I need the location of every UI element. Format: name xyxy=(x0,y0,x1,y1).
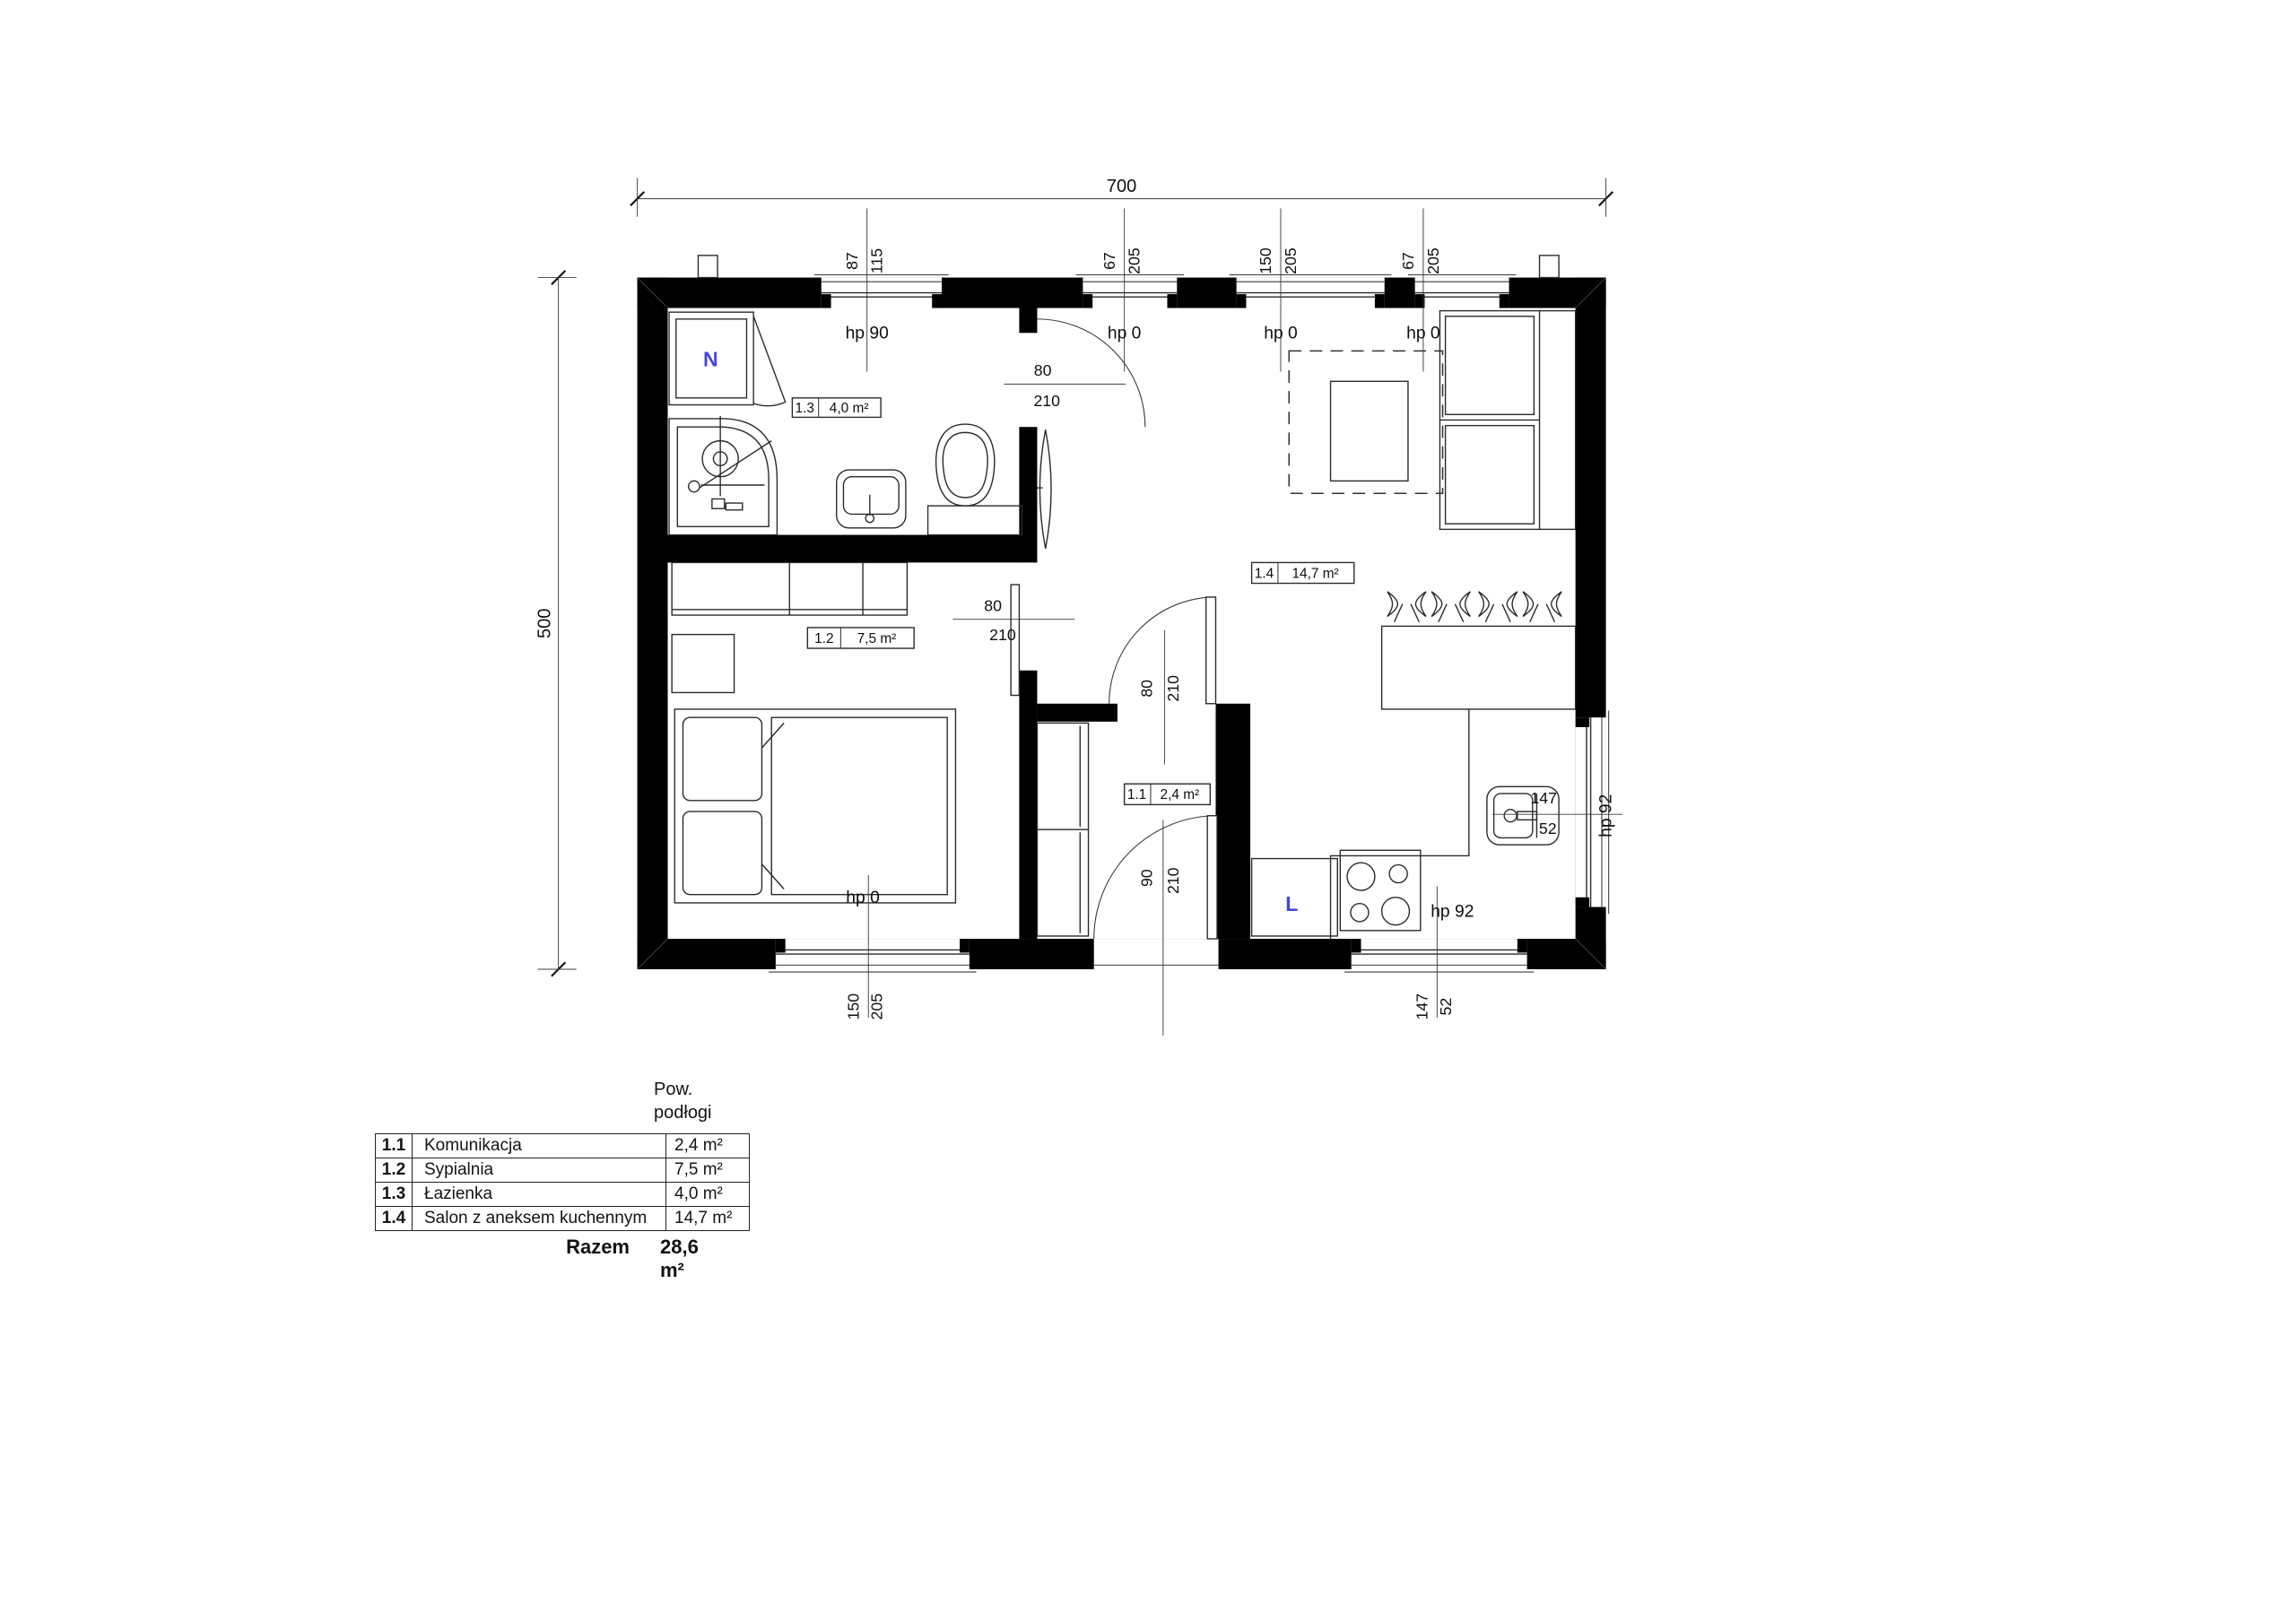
svg-text:210: 210 xyxy=(1164,867,1182,894)
hp-label: hp 0 xyxy=(1264,324,1298,343)
window-top-4 xyxy=(1408,274,1516,308)
svg-text:210: 210 xyxy=(989,626,1016,644)
svg-text:147: 147 xyxy=(1530,789,1557,807)
svg-text:205: 205 xyxy=(1126,247,1144,274)
room-labels: 1.3 4,0 m² 1.2 7,5 m² 1.1 2,4 m² 1.4 14,… xyxy=(792,398,1353,805)
floor-plan-drawing: N xyxy=(478,146,1648,1066)
svg-text:67: 67 xyxy=(1100,252,1118,270)
svg-text:700: 700 xyxy=(1107,177,1136,196)
bathroom-fixtures: N xyxy=(669,312,1022,534)
table-row: 1.3 Łazienka 4,0 m² xyxy=(376,1183,750,1207)
svg-text:80: 80 xyxy=(1034,361,1052,379)
window-top-2 xyxy=(1076,274,1184,308)
bedroom-wardrobe xyxy=(672,562,907,615)
room-name: Salon z aneksem kuchennym xyxy=(413,1207,666,1231)
bar-stools xyxy=(1387,592,1561,622)
entrance-opening xyxy=(1094,939,1219,969)
window-bathroom-top xyxy=(814,274,949,308)
svg-text:52: 52 xyxy=(1539,820,1557,837)
room-label-1.3: 1.3 4,0 m² xyxy=(792,398,881,418)
washer-letter: N xyxy=(703,347,718,370)
hob xyxy=(1340,850,1420,930)
hp-label: hp 0 xyxy=(846,889,880,907)
kitchen-counter: L xyxy=(1252,709,1560,939)
dim-door-hall: 80 210 xyxy=(1138,630,1182,765)
dim-door-bathroom: 80 210 xyxy=(1004,361,1126,410)
hp-label: hp 0 xyxy=(1406,324,1440,343)
dim-door-entrance: 90 210 xyxy=(1138,820,1182,1036)
svg-text:500: 500 xyxy=(535,609,554,638)
room-area-table: 1.1 Komunikacja 2,4 m² 1.2 Sypialnia 7,5… xyxy=(375,1133,750,1231)
svg-text:147: 147 xyxy=(1413,993,1431,1020)
dim-total-width: 700 xyxy=(631,177,1613,217)
room-area: 14,7 m² xyxy=(666,1207,750,1231)
door-bathroom xyxy=(1037,319,1144,549)
wardrobe-projection-dashed xyxy=(1289,351,1442,493)
table-header: Pow. podłogi xyxy=(654,1078,712,1124)
area-table: Pow. podłogi 1.1 Komunikacja 2,4 m² 1.2 … xyxy=(375,1133,726,1261)
living-kitchen: L xyxy=(1252,311,1576,939)
room-area: 7,5 m² xyxy=(666,1158,750,1183)
room-name: Sypialnia xyxy=(413,1158,666,1183)
fridge-letter: L xyxy=(1285,892,1298,915)
washing-machine: N xyxy=(669,312,786,406)
svg-text:67: 67 xyxy=(1399,252,1417,270)
svg-text:210: 210 xyxy=(1033,392,1060,410)
svg-text:1.4: 1.4 xyxy=(1255,566,1274,581)
svg-text:7,5 m²: 7,5 m² xyxy=(857,631,897,646)
svg-text:115: 115 xyxy=(868,248,886,273)
room-label-1.1: 1.1 2,4 m² xyxy=(1125,784,1211,804)
room-area: 4,0 m² xyxy=(666,1183,750,1207)
nightstand xyxy=(672,635,734,693)
bed xyxy=(674,709,955,903)
svg-text:80: 80 xyxy=(984,596,1002,614)
floor-plan: N xyxy=(478,146,1648,1066)
room-label-1.2: 1.2 7,5 m² xyxy=(807,628,914,648)
room-name: Komunikacja xyxy=(413,1134,666,1158)
hall-wardrobe xyxy=(1037,723,1088,936)
svg-text:210: 210 xyxy=(1164,675,1182,702)
total-row: Razem 28,6 m² xyxy=(375,1236,726,1261)
table-header-line2: podłogi xyxy=(654,1101,712,1124)
hp-label: hp 92 xyxy=(1597,794,1616,837)
svg-text:52: 52 xyxy=(1437,998,1455,1016)
bedroom-furniture xyxy=(672,562,955,903)
room-number: 1.2 xyxy=(376,1158,413,1183)
doors xyxy=(1011,319,1217,939)
table-row: 1.2 Sypialnia 7,5 m² xyxy=(376,1158,750,1183)
svg-text:1.3: 1.3 xyxy=(796,401,814,416)
room-label-1.4: 1.4 14,7 m² xyxy=(1252,562,1354,583)
svg-text:205: 205 xyxy=(868,993,886,1020)
window-kitchen-bottom xyxy=(1344,939,1534,972)
svg-text:205: 205 xyxy=(1282,247,1300,274)
svg-text:4,0 m²: 4,0 m² xyxy=(830,401,869,416)
page: N xyxy=(0,0,2296,1622)
bathroom-sink xyxy=(837,470,906,528)
svg-text:1.1: 1.1 xyxy=(1127,787,1146,802)
dim-window-right: 147 52 hp 92 xyxy=(1492,789,1622,837)
room-name: Łazienka xyxy=(413,1183,666,1207)
window-top-3 xyxy=(1230,274,1392,308)
wall-pilaster-right xyxy=(1540,256,1560,278)
room-number: 1.1 xyxy=(376,1134,413,1158)
table-row: 1.4 Salon z aneksem kuchennym 14,7 m² xyxy=(376,1207,750,1231)
svg-text:80: 80 xyxy=(1138,680,1156,698)
room-number: 1.4 xyxy=(376,1207,413,1231)
svg-text:1.2: 1.2 xyxy=(814,631,833,646)
room-area: 2,4 m² xyxy=(666,1134,750,1158)
table-header-line1: Pow. xyxy=(654,1078,712,1101)
toilet xyxy=(928,424,1022,534)
hp-label: hp 92 xyxy=(1431,902,1474,921)
hp-label: hp 90 xyxy=(846,324,889,343)
svg-text:2,4 m²: 2,4 m² xyxy=(1161,787,1200,802)
dim-total-height: 500 xyxy=(535,271,576,976)
hp-label: hp 0 xyxy=(1108,324,1142,343)
total-label: Razem xyxy=(566,1236,630,1259)
svg-text:87: 87 xyxy=(843,252,861,270)
door-hall xyxy=(1109,597,1216,704)
svg-text:90: 90 xyxy=(1138,869,1156,887)
table xyxy=(1331,381,1408,481)
wall-pilaster-left xyxy=(698,256,717,278)
svg-text:14,7 m²: 14,7 m² xyxy=(1291,566,1338,581)
sofa xyxy=(1439,311,1575,530)
window-bedroom-bottom xyxy=(769,939,976,972)
table-row: 1.1 Komunikacja 2,4 m² xyxy=(376,1134,750,1158)
exterior-walls xyxy=(638,256,1606,969)
windows xyxy=(769,274,1609,972)
total-value: 28,6 m² xyxy=(660,1236,726,1282)
svg-text:150: 150 xyxy=(1257,247,1274,274)
bar-counter xyxy=(1382,626,1576,709)
room-number: 1.3 xyxy=(376,1183,413,1207)
svg-text:205: 205 xyxy=(1424,247,1442,274)
shower xyxy=(669,416,777,535)
svg-text:150: 150 xyxy=(844,993,862,1020)
